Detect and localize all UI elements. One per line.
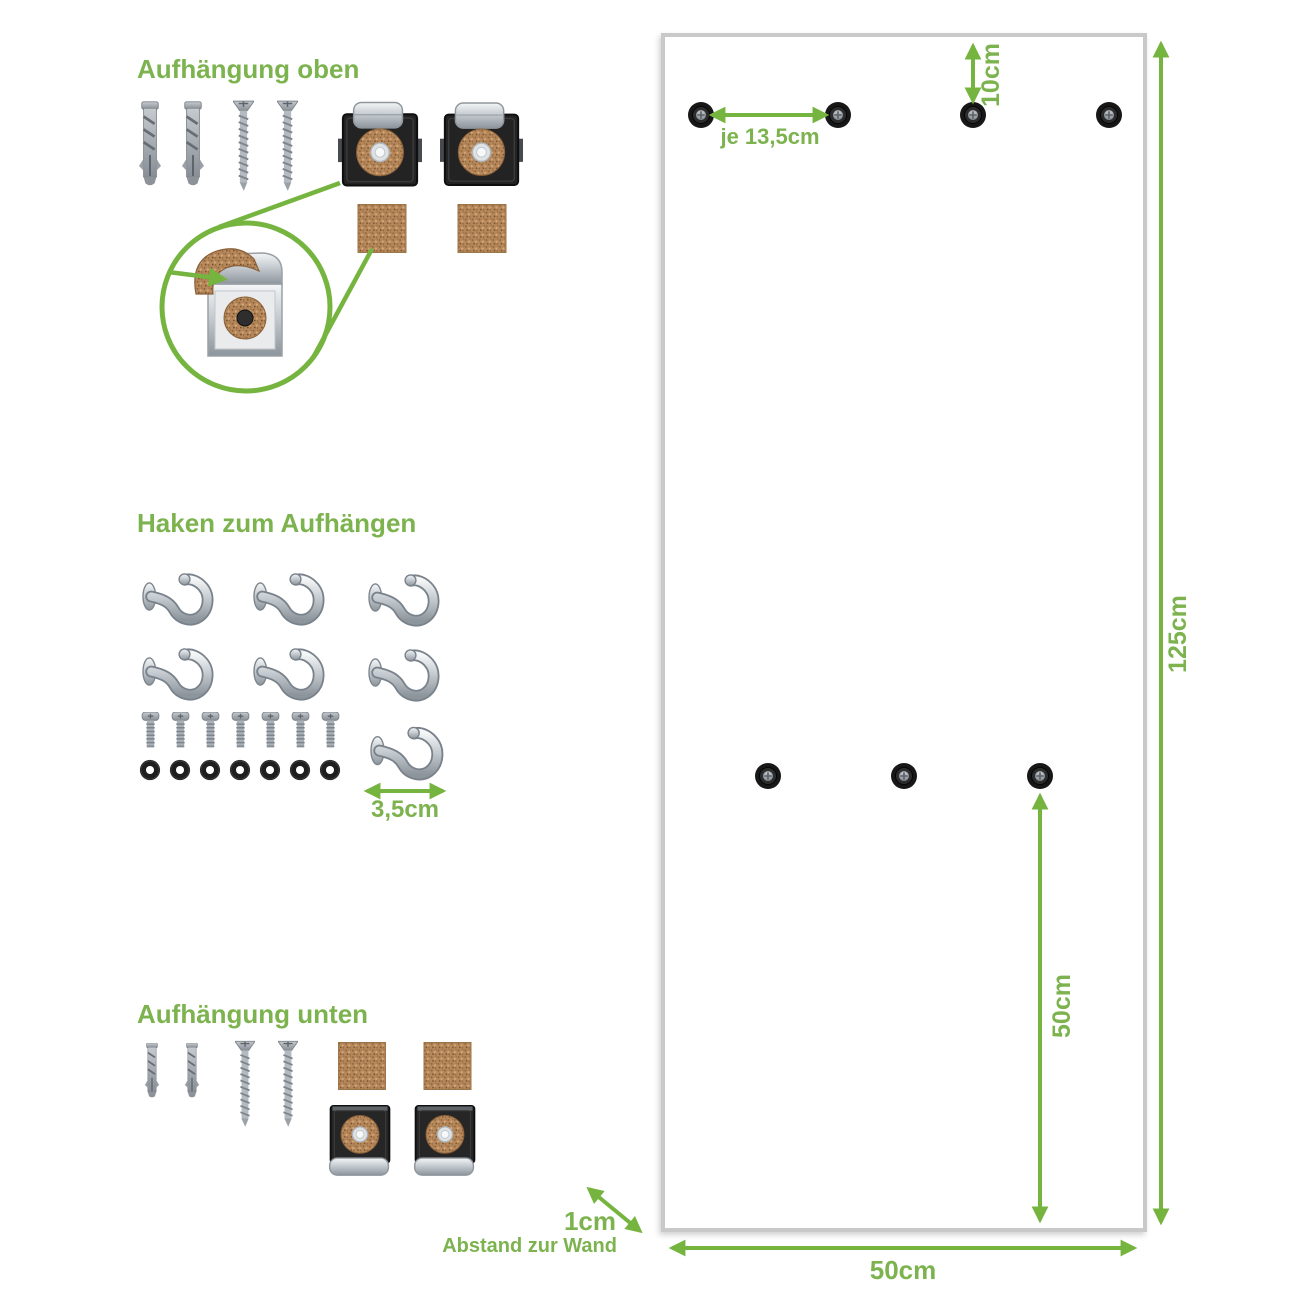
cork-pad-icon	[358, 204, 406, 252]
top-offset-label: 10cm	[979, 35, 1005, 115]
drill-hole-icon	[1027, 763, 1053, 789]
screw-icon	[278, 1041, 298, 1126]
hook-width-label: 3,5cm	[335, 797, 475, 823]
panel-width-label: 50cm	[823, 1256, 983, 1285]
section-title-bottom: Aufhängung unten	[137, 1000, 368, 1029]
washer-icon	[200, 760, 220, 780]
bolt-icon	[262, 712, 279, 747]
bottom-segment-label: 50cm	[1050, 961, 1076, 1051]
wall-plug-icon	[182, 102, 204, 185]
wall-plug-icon	[139, 102, 161, 185]
hook-icon	[369, 650, 434, 696]
section-top-hardware	[139, 101, 523, 391]
hook-icon	[254, 574, 319, 620]
bolt-icon	[202, 712, 219, 747]
bolt-icon	[172, 712, 189, 747]
mounting-clip-icon	[440, 103, 523, 185]
section-title-top: Aufhängung oben	[137, 55, 359, 84]
screw-icon	[235, 1041, 255, 1126]
washer-icon	[230, 760, 250, 780]
drill-hole-icon	[755, 763, 781, 789]
bolt-icon	[232, 712, 249, 747]
washer-icon	[260, 760, 280, 780]
washer-icon	[170, 760, 190, 780]
hole-spacing-label: je 13,5cm	[690, 125, 850, 149]
mounting-clip-icon	[338, 103, 422, 186]
bolt-icon	[142, 712, 159, 747]
hook-icon	[254, 649, 319, 695]
cork-pad-icon	[458, 204, 506, 252]
hook-icon	[369, 575, 434, 621]
drill-hole-icon	[1096, 102, 1122, 128]
mounting-clip-bottom-icon	[415, 1106, 475, 1175]
clip-detail-magnifier	[162, 223, 330, 391]
washer-icon	[290, 760, 310, 780]
cork-pad-icon	[424, 1042, 471, 1089]
drill-hole-icon	[891, 763, 917, 789]
washer-icon	[320, 760, 340, 780]
hook-icon	[371, 727, 437, 774]
section-bottom-hardware	[145, 1041, 475, 1175]
hook-icon	[143, 649, 208, 695]
montage-diagram: Aufhängung oben Haken zum Aufhängen Aufh…	[0, 0, 1300, 1300]
detail-connector-line	[219, 183, 340, 227]
wall-gap-caption: Abstand zur Wand	[397, 1235, 617, 1257]
screw-icon	[277, 101, 298, 191]
bolt-icon	[322, 712, 339, 747]
screw-icon	[233, 101, 254, 191]
mounting-clip-bottom-icon	[330, 1106, 390, 1175]
wall-gap-label: 1cm	[520, 1207, 660, 1236]
panel-height-label: 125cm	[1166, 589, 1192, 679]
diagram-artwork	[0, 0, 1300, 1300]
bolt-icon	[292, 712, 309, 747]
washer-icon	[140, 760, 160, 780]
wall-plug-icon	[185, 1043, 199, 1097]
section-title-hooks: Haken zum Aufhängen	[137, 509, 416, 538]
hook-icon	[143, 574, 208, 620]
clip-hole	[237, 310, 253, 326]
wall-plug-icon	[145, 1043, 159, 1097]
section-hooks-hardware	[140, 574, 437, 780]
cork-pad-icon	[338, 1042, 385, 1089]
